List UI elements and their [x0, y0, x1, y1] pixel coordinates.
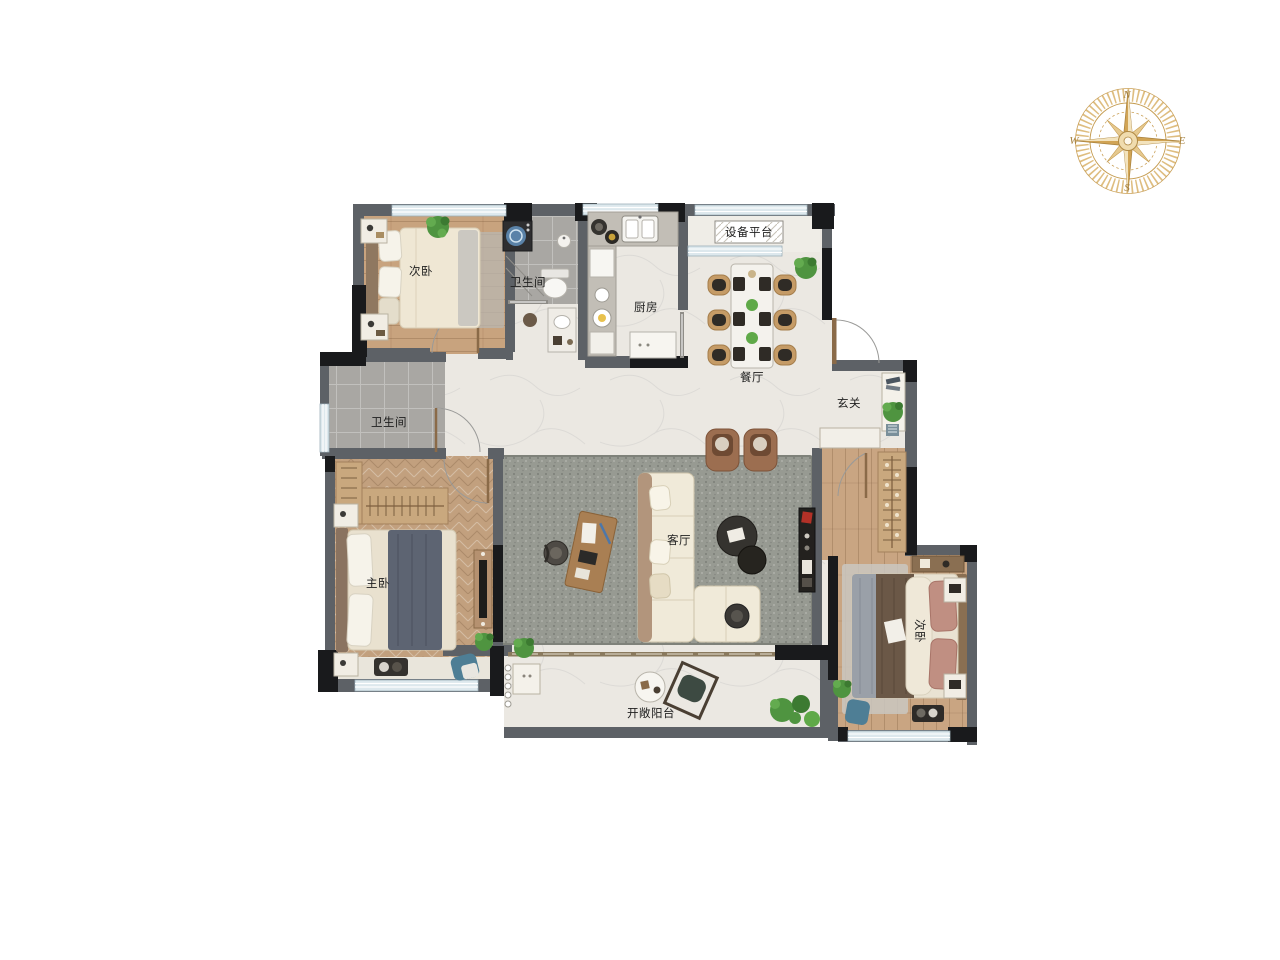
dining-table: [731, 264, 773, 368]
lounge-chair: [844, 698, 871, 726]
sliding-door-bathroom-top: [508, 300, 548, 304]
window-platform-top: [695, 205, 807, 215]
room-label-kitchen: 厨房: [634, 299, 658, 315]
room-label-living-room: 客厅: [667, 532, 691, 548]
room-label-bathroom-top: 卫生间: [510, 274, 546, 290]
bowl: [595, 288, 609, 302]
window-bathroom-left: [320, 404, 329, 452]
room-label-equipment-platform: 设备平台: [725, 224, 773, 240]
tv-console: [799, 508, 815, 592]
tv-cabinet: [474, 550, 492, 628]
vanity: [548, 308, 576, 352]
compass-south-label: S: [1124, 182, 1130, 194]
bench: [374, 658, 408, 676]
entry-door-arc: [836, 320, 879, 363]
nightstand: [361, 219, 387, 243]
nightstand: [944, 674, 966, 698]
window-platform-inner: [688, 246, 782, 256]
dresser: [912, 556, 964, 572]
compass-rose: [1076, 89, 1181, 194]
dining-chair: [774, 310, 796, 330]
stool: [523, 313, 537, 327]
cabinet: [590, 332, 614, 354]
floor-bathroom-left: [328, 360, 445, 452]
balcony-cabinet: [513, 664, 540, 694]
desk-chair: [544, 541, 568, 565]
room-label-bedroom-top-left: 次卧: [409, 263, 433, 279]
kitchen-sink: [622, 215, 658, 242]
room-label-dining-room: 餐厅: [740, 369, 764, 385]
nightstand: [334, 504, 358, 527]
armchair: [744, 429, 777, 471]
entry-door-leaf: [832, 318, 837, 364]
fridge: [590, 249, 614, 277]
compass-west-label: W: [1069, 135, 1078, 147]
compass-north-label: N: [1123, 89, 1130, 101]
floor-plan-canvas: 次卧 卫生间 厨房 设备平台 餐厅 玄关 卫生间 主卧 客厅 次卧 开敞阳台 N…: [0, 0, 1280, 960]
balcony-table: [635, 672, 665, 702]
walk-in-wardrobe: [878, 452, 906, 552]
window-master-bedroom: [355, 680, 478, 691]
dining-chair: [708, 275, 730, 295]
room-label-bedroom-right: 次卧: [912, 619, 928, 643]
washing-machine: [503, 221, 532, 251]
nightstand: [361, 314, 388, 340]
window-bedroom-top-left: [392, 205, 506, 216]
dining-chair: [774, 275, 796, 295]
room-label-master-bedroom: 主卧: [366, 575, 390, 591]
bench: [912, 705, 944, 722]
nightstand: [334, 653, 358, 676]
dining-chair: [774, 345, 796, 365]
armchair: [706, 429, 739, 471]
bed: [336, 528, 456, 652]
window-bedroom-right: [848, 731, 950, 741]
kitchen-island: [630, 332, 676, 358]
floor-plan-graphic: [0, 0, 1280, 960]
dining-chair: [708, 345, 730, 365]
dining-chair: [708, 310, 730, 330]
room-label-balcony: 开敞阳台: [627, 705, 675, 721]
small-sink: [558, 235, 571, 248]
room-label-foyer: 玄关: [837, 395, 861, 411]
room-label-bathroom-left: 卫生间: [371, 414, 407, 430]
nightstand: [944, 578, 966, 602]
sliding-door-kitchen: [680, 312, 684, 358]
compass-east-label: E: [1179, 135, 1186, 147]
sliding-door-balcony: [508, 652, 775, 657]
foyer-cabinet: [820, 428, 880, 448]
